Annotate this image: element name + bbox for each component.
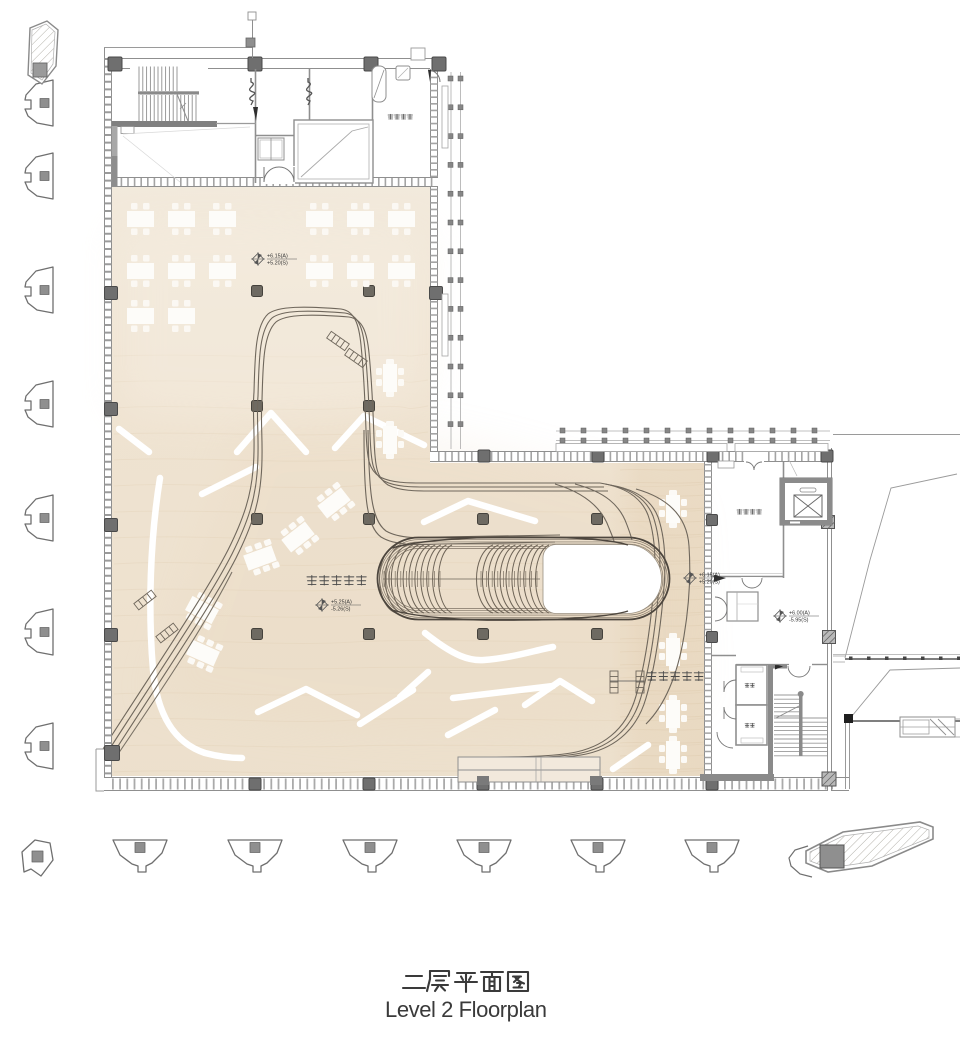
svg-text:+6.15(A): +6.15(A) [267,254,288,260]
svg-text:-5.95(S): -5.95(S) [789,618,809,624]
svg-text:+6.00(A): +6.00(A) [789,611,810,617]
svg-text:-5.26(S): -5.26(S) [331,607,351,613]
svg-text:+5.20(S): +5.20(S) [699,580,720,586]
svg-text:+6.15(A): +6.15(A) [699,573,720,579]
svg-text:+5.20(S): +5.20(S) [267,261,288,267]
svg-text:Level 2 Floorplan: Level 2 Floorplan [385,997,547,1022]
svg-text:+5.25(A): +5.25(A) [331,600,352,606]
